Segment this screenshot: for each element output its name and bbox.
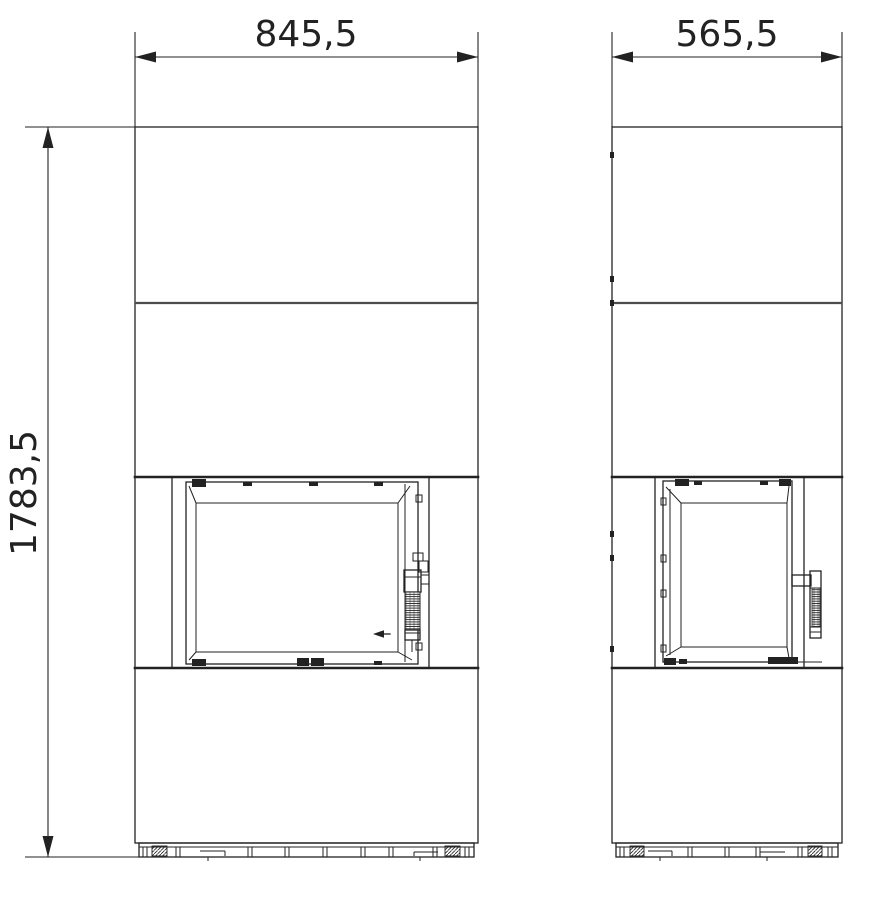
door-clip bbox=[664, 658, 676, 665]
handle-knurled-grip bbox=[405, 592, 420, 630]
door-frame-chamfers bbox=[666, 486, 789, 658]
door-airflow-arrow-icon bbox=[373, 630, 390, 638]
front-door bbox=[186, 479, 429, 666]
door-hinge-mark bbox=[416, 643, 422, 650]
side-door-glass bbox=[681, 503, 787, 647]
door-clip bbox=[675, 479, 689, 486]
fireplace-technical-drawing: 845,5 565,5 1783,5 bbox=[0, 0, 896, 900]
door-clip bbox=[374, 661, 382, 665]
dimension-front-width: 845,5 bbox=[135, 14, 478, 127]
drawing-canvas: 845,5 565,5 1783,5 bbox=[0, 0, 896, 900]
handle-knurled-grip bbox=[812, 588, 820, 627]
dimension-arrow-icon bbox=[821, 52, 842, 63]
side-body-outline bbox=[612, 127, 842, 843]
leveling-bracket bbox=[648, 851, 672, 861]
dimension-overall-height: 1783,5 bbox=[4, 127, 140, 857]
door-hinge-mark bbox=[416, 495, 422, 502]
side-base-plinth bbox=[616, 843, 838, 861]
door-clip bbox=[243, 482, 252, 486]
door-sill bbox=[768, 657, 798, 664]
front-view bbox=[135, 127, 478, 861]
door-clip bbox=[309, 482, 318, 486]
side-door bbox=[661, 479, 822, 665]
door-bottom-latch bbox=[297, 658, 309, 666]
front-door-handle bbox=[404, 553, 429, 652]
foot bbox=[152, 846, 167, 856]
handle-stem bbox=[792, 575, 811, 586]
front-door-glass bbox=[196, 503, 398, 652]
front-width-label: 845,5 bbox=[254, 14, 357, 55]
door-clip bbox=[694, 481, 702, 485]
side-firebox-opening bbox=[612, 477, 842, 668]
door-clip bbox=[192, 479, 206, 487]
front-base-plinth bbox=[139, 843, 474, 861]
side-door-handle bbox=[792, 571, 821, 638]
door-bottom-latch bbox=[311, 658, 324, 666]
plinth-dividers bbox=[620, 847, 832, 857]
foot bbox=[630, 846, 644, 856]
door-clip bbox=[779, 479, 791, 486]
overall-height-label: 1783,5 bbox=[4, 430, 45, 556]
door-clip bbox=[374, 482, 383, 486]
dimension-arrow-icon bbox=[457, 52, 478, 63]
side-view bbox=[610, 127, 842, 861]
leveling-bracket bbox=[200, 851, 225, 861]
foot bbox=[445, 846, 460, 856]
plinth-outline bbox=[616, 843, 838, 857]
dimension-arrow-icon bbox=[43, 836, 54, 857]
dimension-arrow-icon bbox=[43, 127, 54, 148]
door-clip bbox=[192, 659, 206, 666]
door-clip bbox=[760, 481, 768, 485]
dimension-arrow-icon bbox=[135, 52, 156, 63]
dimension-side-width: 565,5 bbox=[612, 14, 842, 127]
dimension-arrow-icon bbox=[612, 52, 633, 63]
foot bbox=[808, 846, 822, 856]
side-door-frame bbox=[663, 481, 792, 662]
side-width-label: 565,5 bbox=[675, 14, 778, 55]
door-clip bbox=[679, 659, 687, 664]
plinth-outline bbox=[139, 843, 474, 857]
